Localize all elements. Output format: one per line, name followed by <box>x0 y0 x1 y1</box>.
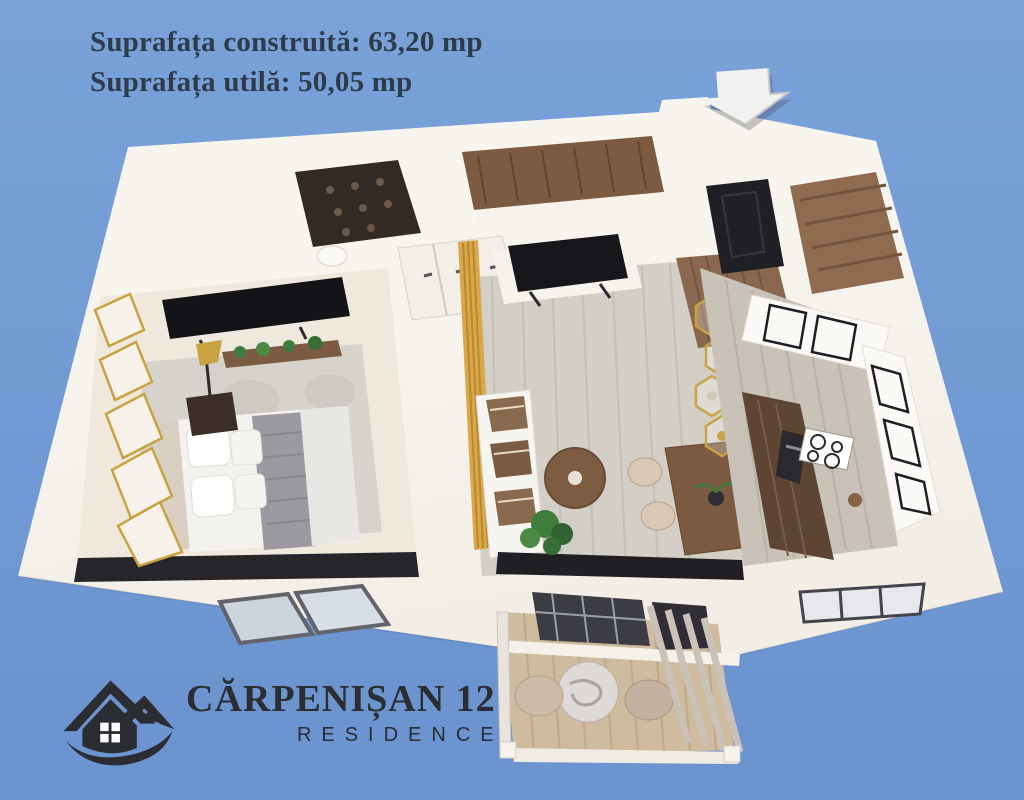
dining-chair <box>628 458 662 486</box>
nightstand <box>186 392 238 436</box>
sofa-pillow <box>490 440 532 478</box>
coffee-table <box>545 448 605 508</box>
balcony-table <box>558 662 618 722</box>
kitchen-window <box>800 584 924 622</box>
sofa-pillow <box>486 396 528 432</box>
area-info: Suprafața construită: 63,20 mp Suprafața… <box>90 22 483 102</box>
area-usable-label: Suprafața utilă: 50,05 mp <box>90 62 483 102</box>
bathroom-floor <box>295 160 421 247</box>
bowl <box>848 493 862 507</box>
logo-subtitle: RESIDENCE <box>297 724 504 747</box>
balcony <box>497 592 740 764</box>
toilet <box>317 246 347 266</box>
logo: CĂRPENIȘAN 12 RESIDENCE <box>58 668 496 768</box>
dining-chair <box>641 502 675 530</box>
marketing-render-page: { "colors": { "sky-top": "#7aa2d9", "sky… <box>0 0 1024 800</box>
area-built-label: Suprafața construită: 63,20 mp <box>90 22 483 62</box>
balcony-chair <box>515 676 563 716</box>
sofa-pillow <box>494 488 537 526</box>
bedroom <box>74 268 419 582</box>
logo-text: CĂRPENIȘAN 12 RESIDENCE <box>186 680 496 747</box>
house-logo-icon <box>58 668 180 768</box>
logo-title: CĂRPENIȘAN 12 <box>186 680 496 720</box>
bed <box>156 406 360 552</box>
scene: Suprafața construită: 63,20 mp Suprafața… <box>0 0 1024 800</box>
balcony-chair <box>625 680 673 720</box>
